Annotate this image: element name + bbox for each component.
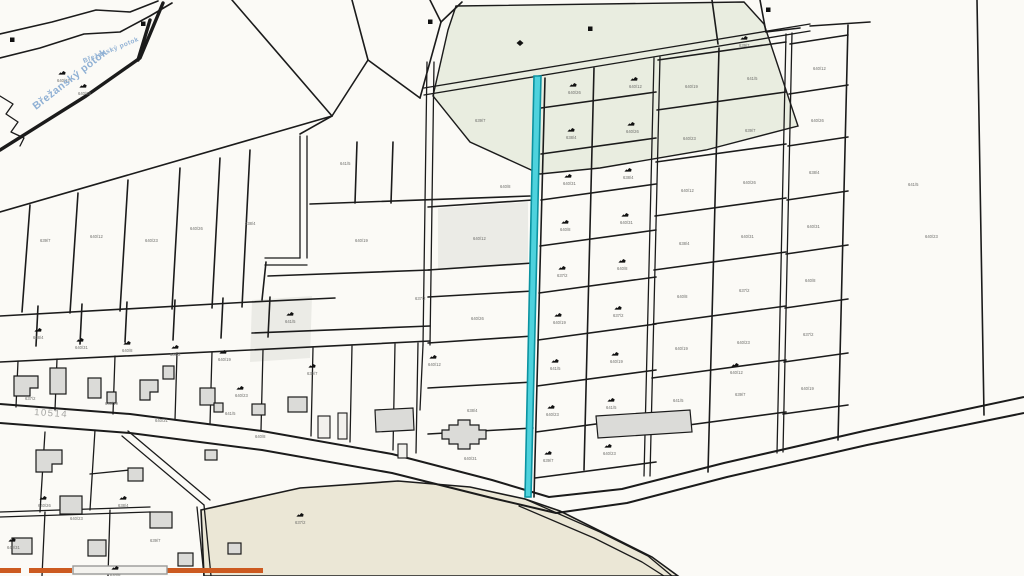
parcel-number: 638/4 [679,241,690,246]
parcel-number: 640/19 [675,346,688,351]
parcel-number: 640/23 [235,393,248,398]
landuse-symbol-icon [766,8,771,13]
parcel-number: 638/4 [118,503,129,508]
parcel-number: 638/4 [245,221,256,226]
parcel-number: 638/4 [566,135,577,140]
parcel-number: 640/8 [617,266,628,271]
parcel-number: 640/23 [546,412,559,417]
parcel-number: 640/8 [805,278,816,283]
parcel-number: 640/31 [807,224,820,229]
parcel-number: 639/7 [543,458,554,463]
parcel-number: 640/31 [75,345,88,350]
parcel-number: 640/8 [560,227,571,232]
landuse-symbol-icon [141,22,146,27]
parcel-number: 638/4 [467,408,478,413]
parcel-number: 641/5 [606,405,617,410]
landuse-symbol-icon [10,38,15,43]
parcel-number: 640/23 [603,451,616,456]
parcel-number: 641/5 [225,411,236,416]
parcel-number: 640/26 [38,503,51,508]
parcel-number: 637/2 [803,332,814,337]
parcel-number: 641/5 [340,161,351,166]
parcel-number: 640/31 [155,418,168,423]
parcel-number: 639/7 [150,538,161,543]
parcel-number: 637/2 [295,520,306,525]
parcel-number: 640/23 [925,234,938,239]
parcel-number: 640/31 [7,545,20,550]
parcel-number: 639/7 [307,371,318,376]
parcel-number: 640/23 [737,340,750,345]
parcel-number: 637/2 [415,296,426,301]
parcel-number: 639/7 [40,238,51,243]
parcel-number: 640/19 [218,357,231,362]
parcel-number: 640/31 [741,234,754,239]
parcel-number: 640/12 [681,188,694,193]
parcel-number: 640/23 [145,238,158,243]
parcel-number: 641/5 [285,319,296,324]
parcel-number: 640/19 [105,401,118,406]
cadastral-map-canvas[interactable]: 640/12640/26638/4640/31640/8637/2640/196… [0,0,1024,576]
parcel-number: 639/7 [735,392,746,397]
parcel-number: 640/12 [428,362,441,367]
parcel-number: 638/4 [809,170,820,175]
parcel-number: 640/19 [610,359,623,364]
parcel-number: 640/12 [90,234,103,239]
parcel-number: 640/8 [500,184,511,189]
parcel-number: 640/12 [813,66,826,71]
parcel-number: 640/26 [78,91,91,96]
parcel-number: 640/26 [471,316,484,321]
parcel-number: 641/5 [747,76,758,81]
landuse-symbol-icon [588,27,593,32]
parcel-number: 640/31 [464,456,477,461]
parcel-number: 641/5 [673,398,684,403]
parcel-number: 639/7 [739,43,750,48]
parcel-number: 637/2 [170,352,181,357]
landuse-symbol-icon [428,20,433,25]
parcel-number: 638/4 [33,335,44,340]
parcel-number: 637/2 [739,288,750,293]
map-viewport[interactable]: 640/12640/26638/4640/31640/8637/2640/196… [0,0,1024,576]
parcel-number: 641/5 [908,182,919,187]
parcel-number: 640/26 [626,129,639,134]
parcel-number: 640/12 [629,84,642,89]
parcel-number: 640/8 [122,348,133,353]
parcel-number: 640/19 [553,320,566,325]
parcel-number: 637/2 [25,396,36,401]
parcel-number: 640/26 [811,118,824,123]
parcel-number: 639/7 [475,118,486,123]
parcel-number: 640/31 [620,220,633,225]
parcel-number: 639/7 [745,128,756,133]
parcel-number: 637/2 [557,273,568,278]
parcel-number: 640/19 [355,238,368,243]
parcel-number: 640/8 [677,294,688,299]
gray-parcel [250,296,312,362]
parcel-number: 640/26 [190,226,203,231]
parcel-number: 640/19 [685,84,698,89]
parcel-number: 640/23 [683,136,696,141]
parcel-number: 640/26 [568,90,581,95]
parcel-number: 640/31 [563,181,576,186]
parcel-number: 640/19 [801,386,814,391]
parcel-number: 638/4 [623,175,634,180]
parcel-number: 640/23 [70,516,83,521]
parcel-number: 640/8 [255,434,266,439]
parcel-number: 641/5 [550,366,561,371]
parcel-number: 640/12 [730,370,743,375]
parcel-number: 640/26 [743,180,756,185]
parcel-number: 637/2 [613,313,624,318]
parcel-number: 640/12 [473,236,486,241]
